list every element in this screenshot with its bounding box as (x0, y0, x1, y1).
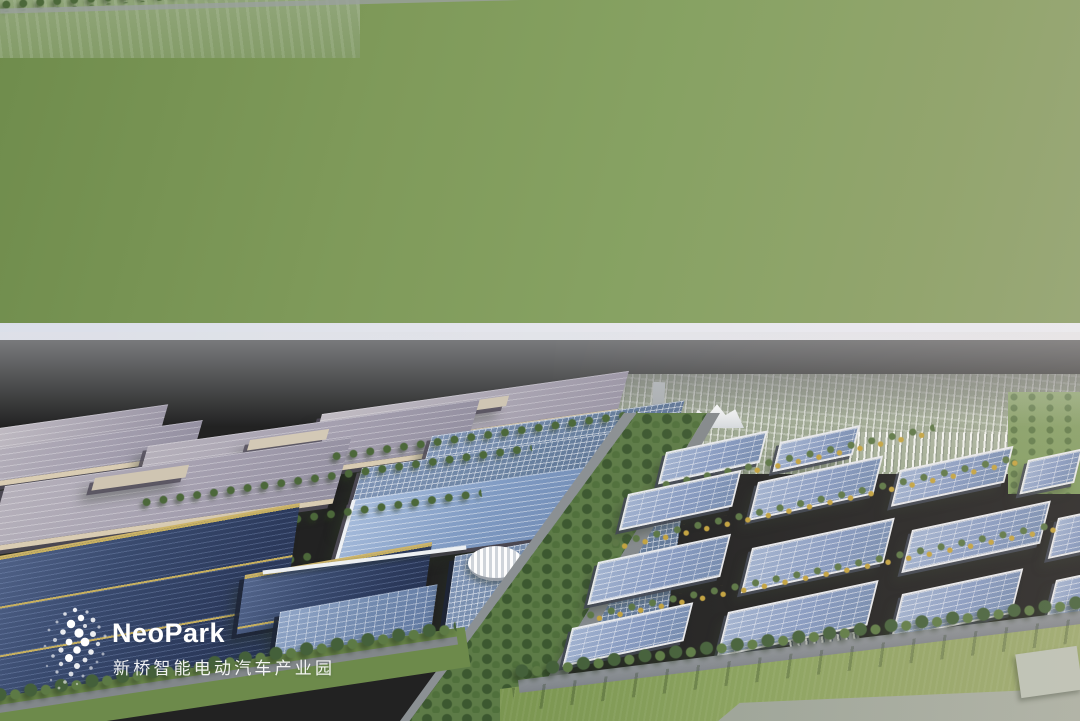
neopark-watermark: NeoPark 新桥智能电动汽车产业园 (35, 598, 355, 710)
concrete-slab (1015, 646, 1080, 698)
warehouse (1048, 508, 1080, 559)
brand-name: NeoPark (112, 618, 225, 649)
neopark-aerial-render: NeoPark 新桥智能电动汽车产业园 (0, 0, 1080, 721)
brand-subtitle: 新桥智能电动汽车产业园 (113, 654, 335, 679)
